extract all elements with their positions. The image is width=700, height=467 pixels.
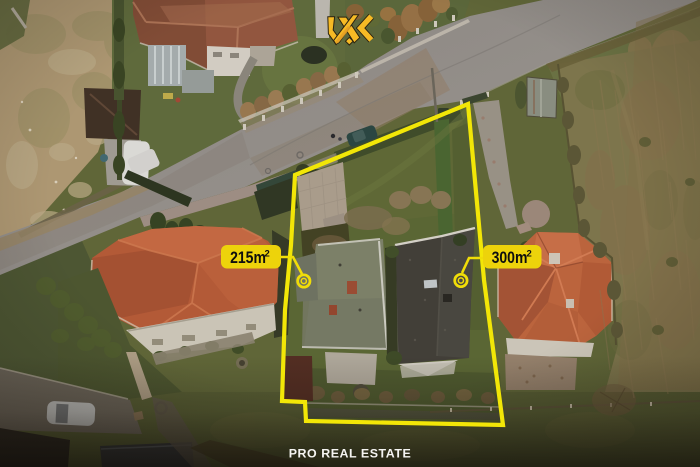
svg-text:PRO REAL ESTATE: PRO REAL ESTATE <box>289 447 412 461</box>
svg-text:2: 2 <box>265 249 270 260</box>
svg-text:215m: 215m <box>230 249 266 267</box>
svg-text:2: 2 <box>527 249 532 260</box>
svg-text:300m: 300m <box>492 249 528 267</box>
